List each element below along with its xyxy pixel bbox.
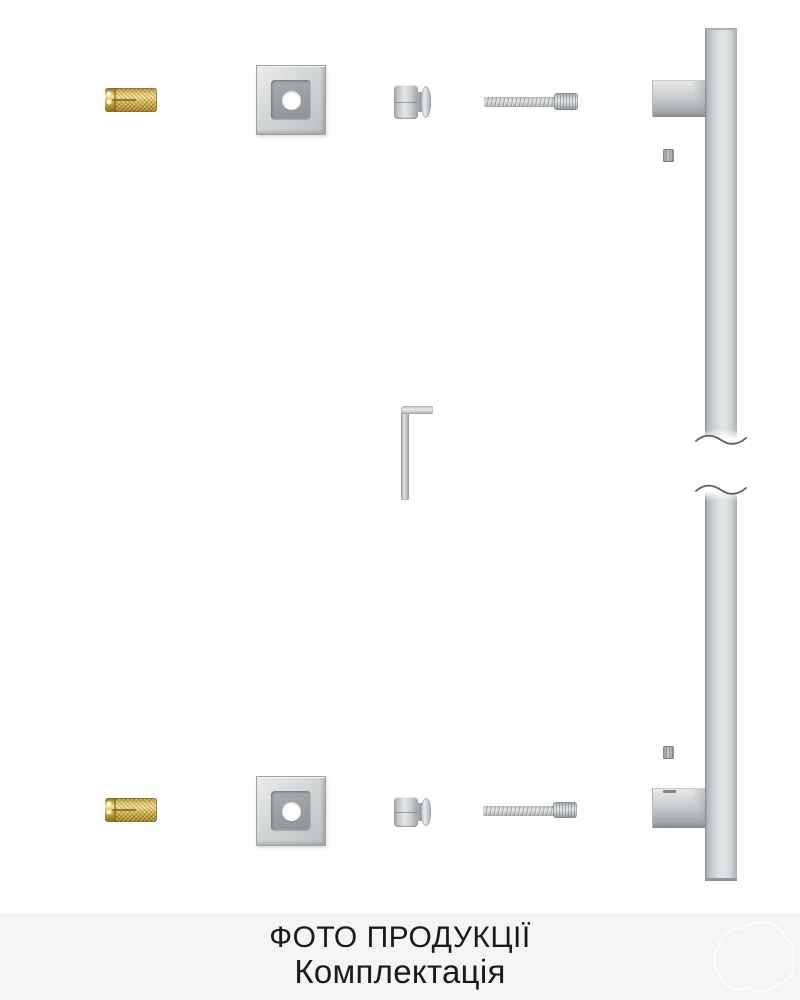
watermark-cloud-icon bbox=[712, 920, 798, 996]
pull-handle-bar-upper bbox=[705, 28, 737, 439]
handle-mounting-arm-bottom bbox=[652, 788, 708, 828]
allen-key-icon bbox=[401, 406, 433, 500]
product-photo: ФОТО ПРОДУКЦІЇ Комплектація bbox=[0, 0, 800, 1000]
wall-anchor-icon bbox=[105, 88, 157, 112]
wall-anchor-icon bbox=[105, 798, 157, 822]
pull-handle-bar-lower bbox=[705, 491, 737, 881]
break-mark-icon bbox=[695, 483, 747, 497]
caption-subtitle: Комплектація bbox=[0, 953, 800, 991]
plate-hole bbox=[282, 91, 301, 110]
mounting-plate-icon bbox=[256, 65, 326, 135]
set-screw-hole bbox=[663, 790, 676, 793]
caption-strip: ФОТО ПРОДУКЦІЇ Комплектація bbox=[0, 913, 800, 1000]
socket-bolt-icon bbox=[484, 93, 578, 110]
set-screw-icon bbox=[663, 746, 674, 759]
handle-mounting-arm-top bbox=[652, 80, 708, 117]
socket-bolt-icon bbox=[483, 802, 577, 818]
caption-title: ФОТО ПРОДУКЦІЇ bbox=[0, 921, 800, 955]
standoff-knob-icon bbox=[394, 797, 431, 827]
plate-hole bbox=[282, 802, 301, 821]
break-mark-icon bbox=[695, 433, 747, 447]
set-screw-icon bbox=[663, 149, 674, 162]
mounting-plate-icon bbox=[256, 776, 326, 846]
standoff-knob-icon bbox=[394, 85, 431, 119]
